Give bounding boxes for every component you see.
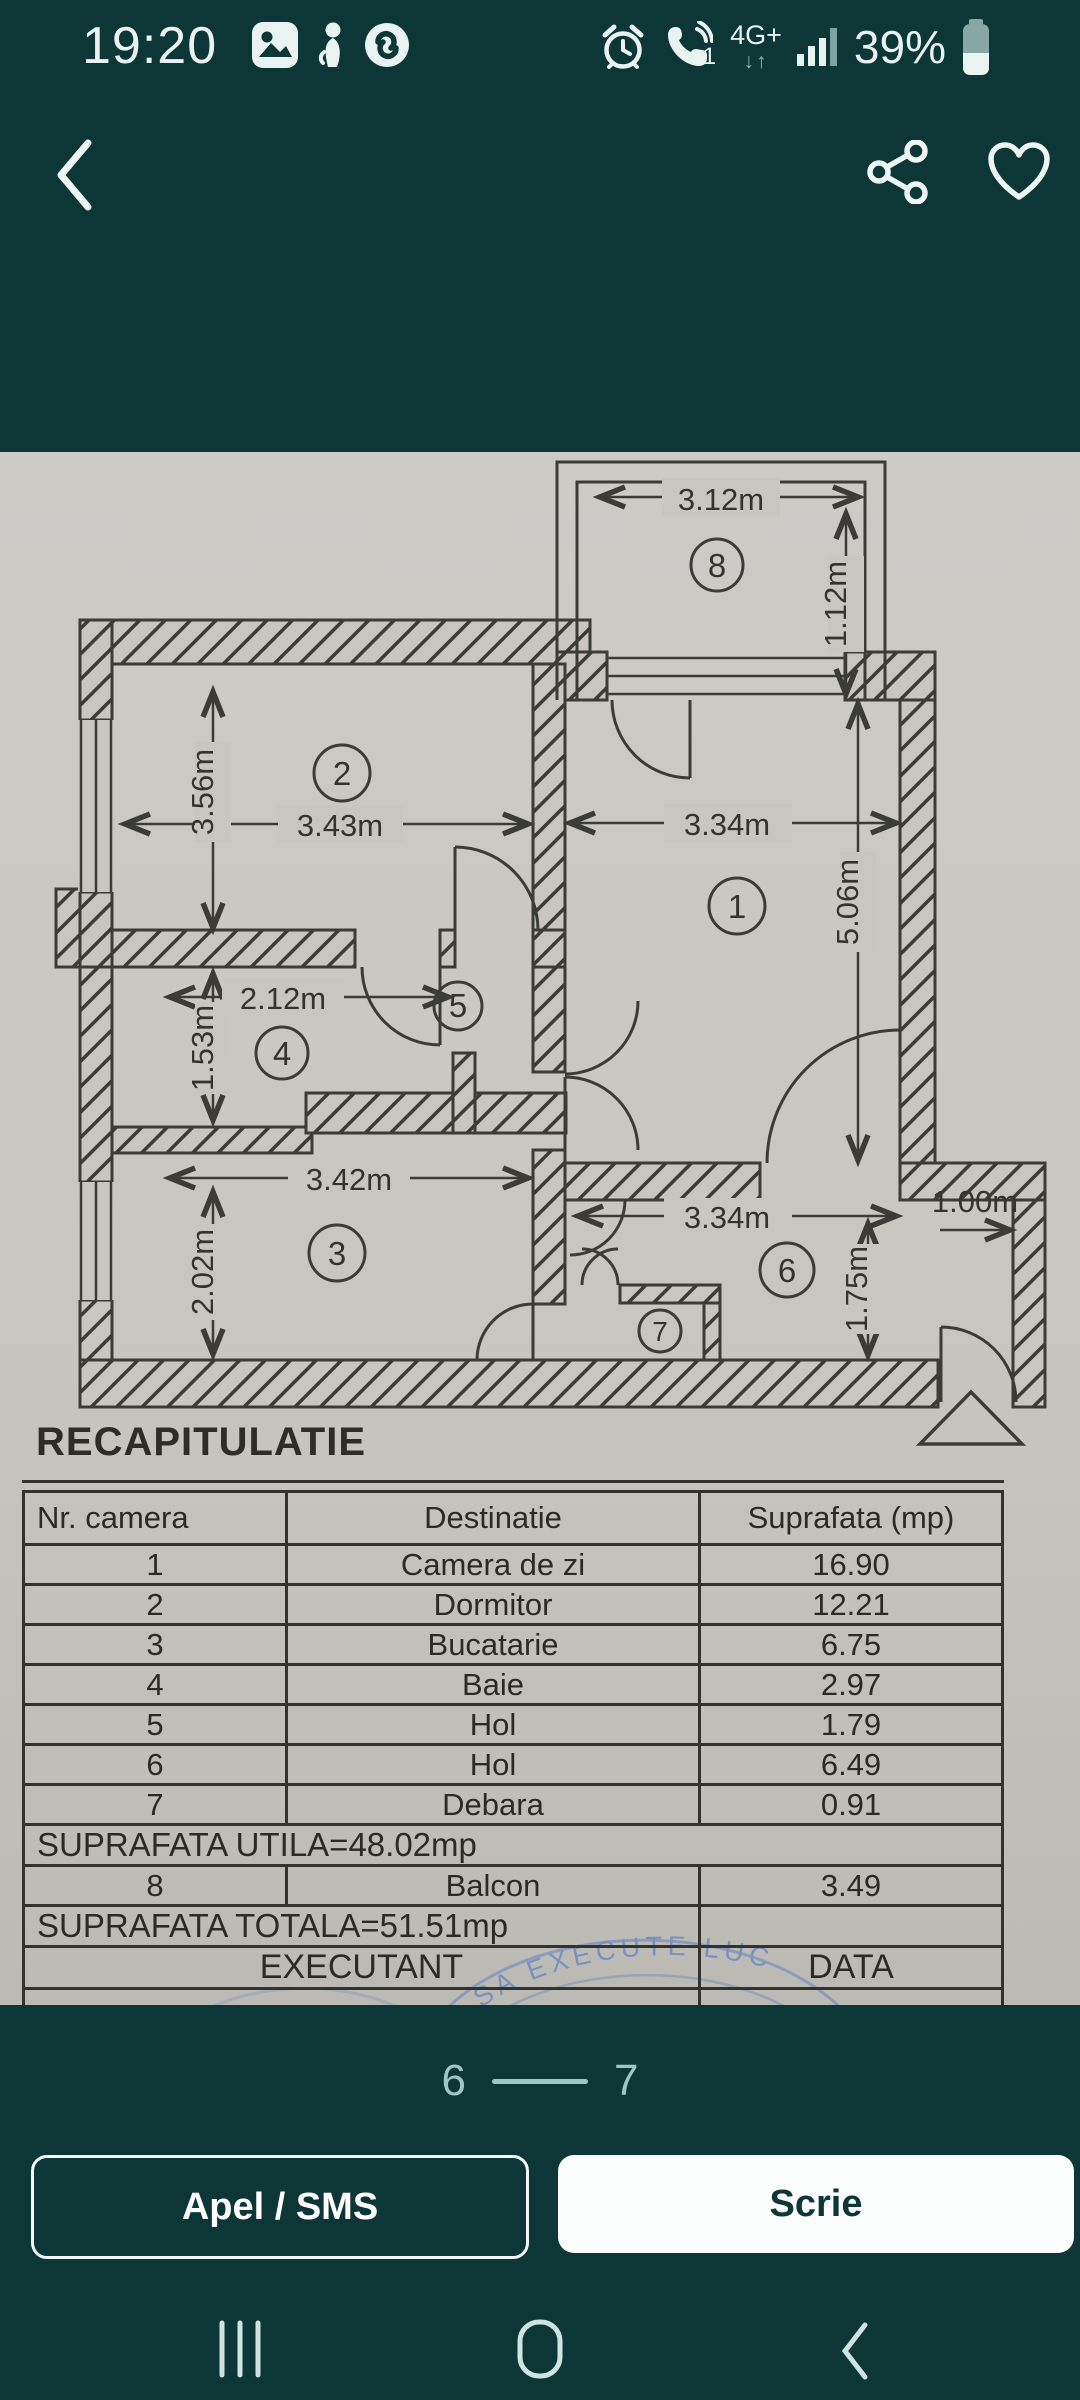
system-nav-bar [0,2300,1080,2400]
dim-kitchen-height: 2.02m [185,1229,220,1315]
table-row: 6 Hol 6.49 [24,1745,1003,1785]
balcony-row: 8 Balcon 3.49 [24,1866,1003,1906]
room-4-label: 4 [273,1035,291,1072]
utila-row: SUPRAFATA UTILA=48.02mp [24,1825,1003,1866]
executant-row: EXECUTANT DATA [24,1947,1003,1989]
pager-current: 6 [442,2056,466,2106]
suprafata-utila: SUPRAFATA UTILA=48.02mp [24,1825,1003,1866]
table-top-rule [22,1480,1004,1483]
network-type-indicator: 4G+ ↓↑ [730,22,782,72]
dim-bath-width: 2.12m [240,981,326,1016]
dim-room2-height: 3.56m [185,749,220,835]
pager-next: 7 [614,2056,638,2106]
favorite-heart-button[interactable] [986,141,1052,203]
room-3-label: 3 [328,1235,346,1272]
totala-row: SUPRAFATA TOTALA=51.51mp [24,1906,1003,1947]
floor-plan-photo[interactable]: 3.12m 1.12m 3.56m 3.43m 3.34m 5.06m 2.12… [0,452,1080,2005]
back-button[interactable] [52,136,96,214]
table-header-row: Nr. camera Destinatie Suprafata (mp) [24,1492,1003,1545]
home-button[interactable] [516,2318,564,2380]
gallery-notification-icon [252,22,298,68]
dim-balcony-width: 3.12m [678,482,764,517]
room-7-label: 7 [652,1316,668,1347]
dimension-labels: 3.12m 1.12m 3.56m 3.43m 3.34m 5.06m 2.12… [185,478,1018,1334]
pager-progress-line [492,2079,588,2084]
col-header-destinatie: Destinatie [287,1492,700,1545]
call-sms-button[interactable]: Apel / SMS [31,2155,529,2259]
clock: 19:20 [82,16,217,76]
photo-pager[interactable]: 6 7 [0,2048,1080,2114]
room-2-label: 2 [333,755,351,792]
dim-balcony-depth: 1.12m [818,561,853,647]
recents-button[interactable] [217,2320,263,2378]
table-row: 2 Dormitor 12.21 [24,1585,1003,1625]
battery-icon [960,17,992,77]
dim-hall-height: 1.75m [839,1246,874,1332]
dim-room1-width: 3.34m [684,807,770,842]
table-row: 7 Debara 0.91 [24,1785,1003,1825]
status-bar: 19:20 [0,0,1080,92]
dim-entry-width: 1.00m [932,1184,1018,1219]
table-row: 4 Baie 2.97 [24,1665,1003,1705]
dim-hall-width: 3.34m [684,1200,770,1235]
suprafata-totala: SUPRAFATA TOTALA=51.51mp [24,1906,700,1947]
dim-room2-width: 3.43m [297,808,383,843]
call-count: 1 [703,43,716,71]
col-header-nr: Nr. camera [24,1492,287,1545]
app-bar [0,92,1080,262]
back-nav-button[interactable] [838,2320,870,2382]
person-app-icon [314,22,348,68]
table-row: 3 Bucatarie 6.75 [24,1625,1003,1665]
table-row: 5 Hol 1.79 [24,1705,1003,1745]
room-6-label: 6 [778,1252,796,1289]
dim-bath-height: 1.53m [185,1005,220,1091]
signature-row [24,1989,1003,2006]
executant-label: EXECUTANT [24,1947,700,1989]
write-message-button[interactable]: Scrie [558,2155,1074,2253]
dim-kitchen-width: 3.42m [306,1162,392,1197]
battery-percent: 39% [854,20,946,74]
share-button[interactable] [866,140,930,204]
data-arrows: ↓↑ [744,51,769,72]
room-area-table: Nr. camera Destinatie Suprafata (mp) 1 C… [22,1490,1004,2005]
room-1-label: 1 [728,888,746,925]
room-5-label: 5 [449,987,467,1024]
shazam-notification-icon [364,22,410,68]
table-row: 1 Camera de zi 16.90 [24,1545,1003,1585]
col-header-suprafata: Suprafata (mp) [700,1492,1003,1545]
dim-room1-height: 5.06m [830,859,865,945]
active-call-icon: 1 [663,21,716,73]
room-8-label: 8 [708,547,726,584]
data-label: DATA [700,1947,1003,1989]
signal-strength-icon [796,25,840,69]
listing-photo-screen: 19:20 [0,0,1080,2400]
alarm-icon [597,20,649,74]
recap-title: RECAPITULATIE [36,1420,366,1465]
